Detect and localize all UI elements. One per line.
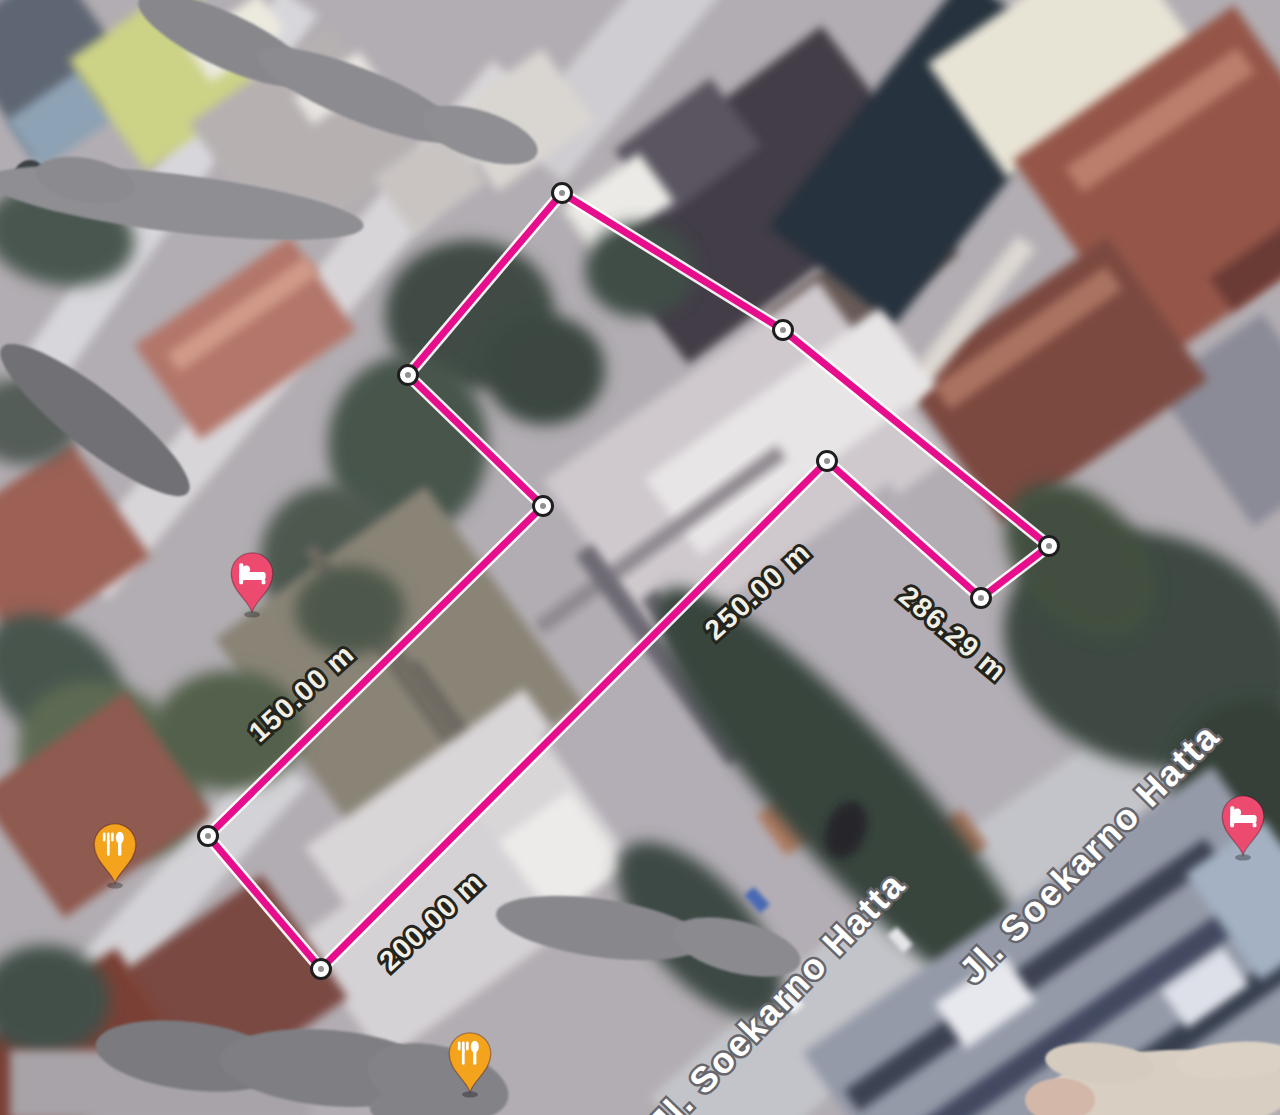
measure-vertex-handle[interactable]: [199, 827, 218, 846]
measure-vertex-handle[interactable]: [1040, 537, 1059, 556]
measure-vertex-handle[interactable]: [312, 960, 331, 979]
measure-vertex-handle[interactable]: [399, 366, 418, 385]
measure-vertex-handle[interactable]: [818, 452, 837, 471]
measure-vertex-handle[interactable]: [774, 321, 793, 340]
measure-vertex-handle[interactable]: [553, 184, 572, 203]
map-canvas: 150.00 m200.00 m250.00 m286.29 mJl. Soek…: [0, 0, 1280, 1115]
measure-vertex-handle[interactable]: [972, 589, 991, 608]
satellite-map[interactable]: 150.00 m200.00 m250.00 m286.29 mJl. Soek…: [0, 0, 1280, 1115]
measure-vertex-handle[interactable]: [534, 497, 553, 516]
